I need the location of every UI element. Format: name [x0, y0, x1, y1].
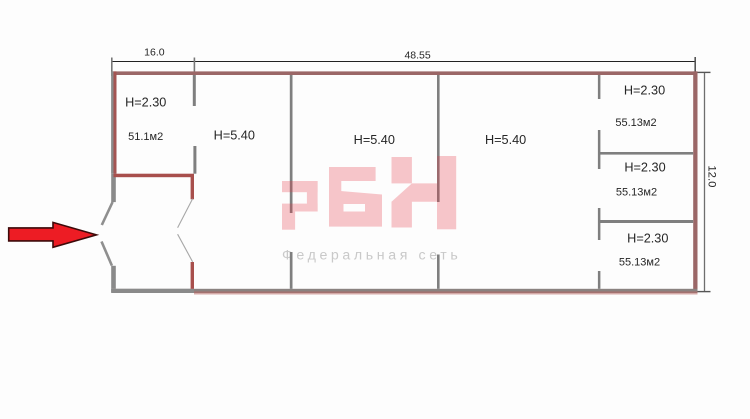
- svg-text:48.55: 48.55: [404, 49, 430, 61]
- svg-text:55.13м2: 55.13м2: [616, 186, 657, 198]
- svg-text:51.1м2: 51.1м2: [128, 131, 163, 143]
- svg-text:H=2.30: H=2.30: [125, 96, 166, 110]
- svg-text:Федеральная сеть: Федеральная сеть: [282, 247, 461, 263]
- svg-text:H=5.40: H=5.40: [214, 129, 255, 143]
- svg-text:H=2.30: H=2.30: [624, 160, 665, 174]
- svg-text:H=2.30: H=2.30: [624, 84, 665, 98]
- svg-text:55.13м2: 55.13м2: [615, 117, 656, 129]
- svg-text:16.0: 16.0: [144, 47, 165, 59]
- svg-text:55.13м2: 55.13м2: [619, 256, 660, 268]
- svg-text:H=5.40: H=5.40: [485, 133, 526, 147]
- svg-text:H=2.30: H=2.30: [627, 231, 668, 245]
- svg-text:H=5.40: H=5.40: [354, 133, 395, 147]
- svg-text:12.0: 12.0: [705, 165, 717, 187]
